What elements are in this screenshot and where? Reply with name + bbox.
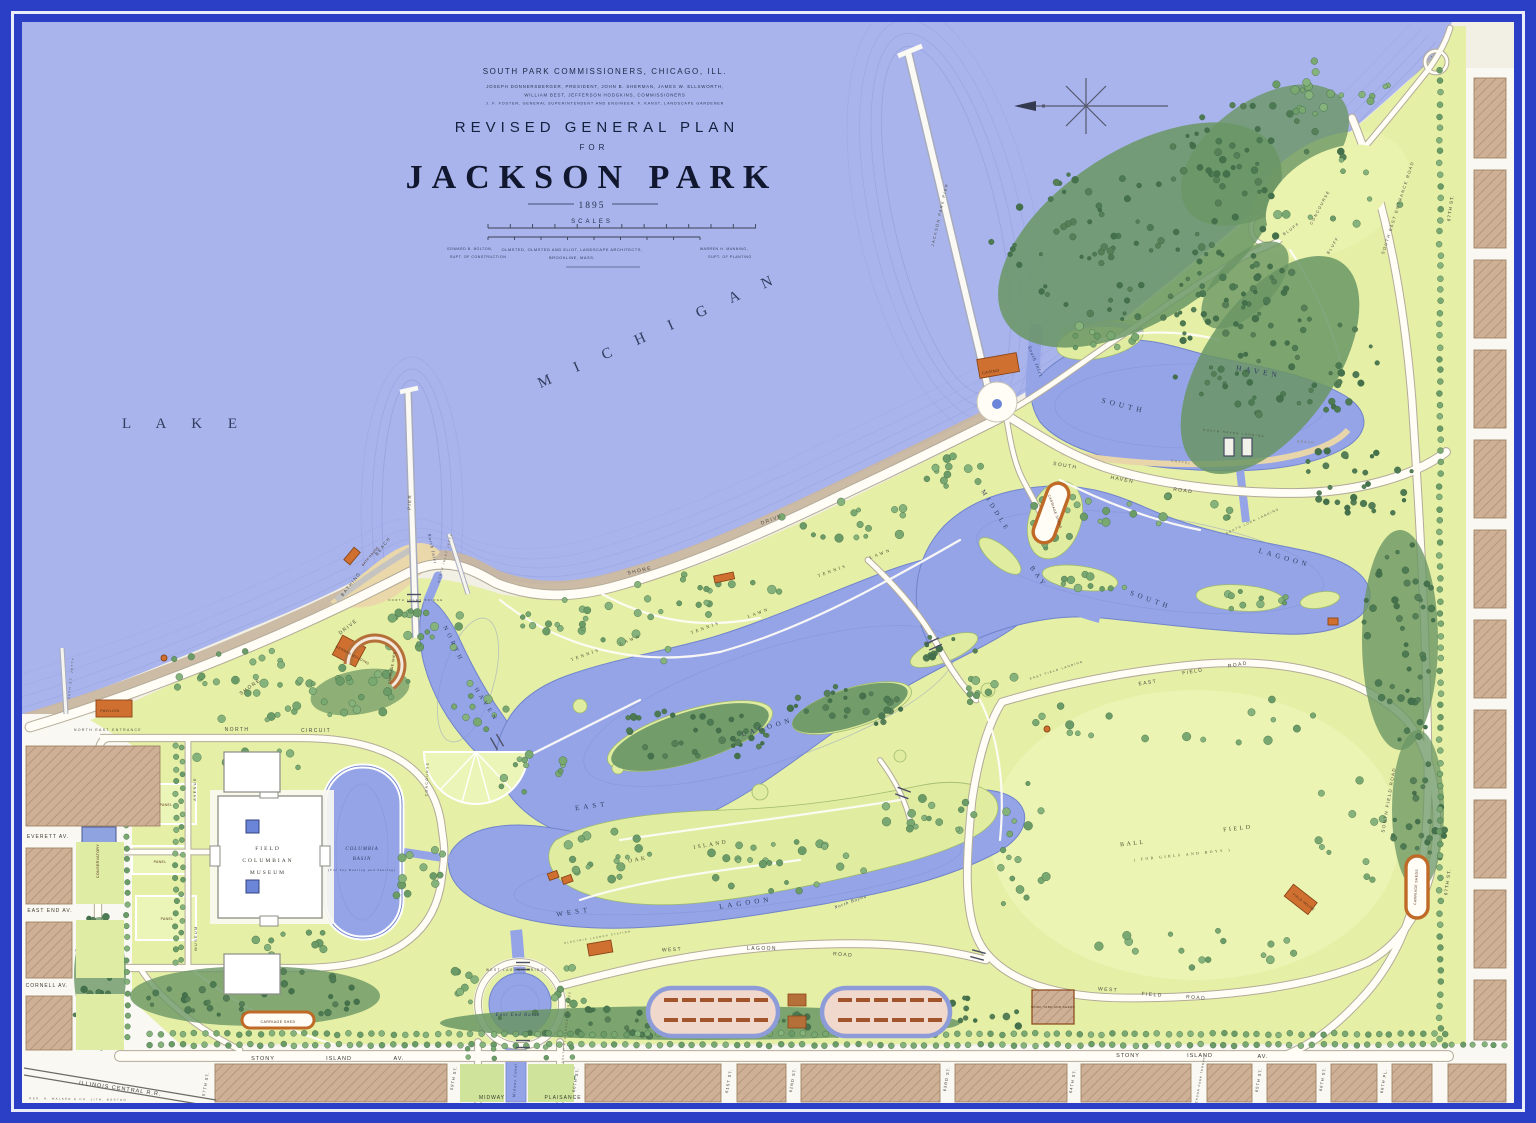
map-canvas: SOUTH PARK COMMISSIONERS, CHICAGO, ILL. … [0, 0, 1536, 1123]
map-label: WEST [662, 946, 682, 953]
ball-field-meadow [990, 690, 1400, 980]
map-label: PANEL [161, 917, 174, 921]
map-label: BASIN [353, 857, 372, 862]
map-label: ISLAND [1187, 1053, 1213, 1059]
commissioners-line1: JOSEPH DONNERSBERGER, PRESIDENT, JOHN B.… [486, 84, 724, 89]
map-label: STONY [251, 1056, 275, 1062]
map-title-for: FOR [580, 143, 609, 152]
map-label: CARRIAGE SHED [261, 1020, 296, 1024]
credit-center-city: BROOKLINE, MASS. [549, 255, 595, 260]
map-year: 1895 [579, 201, 606, 211]
map-label: East End Basin [495, 1013, 541, 1018]
map-label: PANEL [160, 803, 173, 807]
map-title: REVISED GENERAL PLAN [455, 119, 740, 136]
map-label: NORTH EAST ENTRANCE [74, 728, 142, 732]
map-label: PIER [407, 494, 413, 510]
map-label: L A K E [122, 416, 248, 432]
credit-center-firm: OLMSTED, OLMSTED AND ELIOT, LANDSCAPE AR… [502, 247, 643, 252]
commissioners-org: SOUTH PARK COMMISSIONERS, CHICAGO, ILL. [483, 67, 728, 76]
map-label: COLUMBIA [345, 847, 378, 852]
map-label: PLAISANCE [544, 1095, 581, 1101]
map-label: NORTH [225, 727, 250, 733]
map-label: MUSEUM [250, 870, 286, 876]
credit-right-role: SUPT. OF PLANTING [708, 255, 752, 259]
map-label: WORK YARD AND SHEDS [1031, 1005, 1075, 1009]
map-label: AVENUE [193, 777, 197, 801]
map-label: EAST END AV. [27, 908, 72, 914]
map-label: MIDWAY [479, 1095, 505, 1101]
map-label: STONY [1116, 1053, 1140, 1059]
map-label: PAVILION [100, 709, 119, 713]
map-label: AV. [1258, 1054, 1269, 1060]
map-label: NORTH INLET BRIDGE [388, 598, 443, 602]
map-label: PANEL [154, 860, 167, 864]
park-name-title: JACKSON PARK [406, 159, 779, 196]
credit-left-role: SUPT. OF CONSTRUCTION [450, 255, 507, 259]
commissioners-line2: WILLIAM BEST, JEFFERSON HODGKINS, COMMIS… [524, 93, 685, 98]
map-label: MUSEUM [194, 925, 198, 950]
map-label: EVERETT AV. [27, 834, 69, 840]
map-label: CIRCUIT [301, 728, 331, 734]
commissioners-line3: J. F. FOSTER, GENERAL SUPERINTENDENT AND… [486, 102, 724, 106]
map-label: ISLAND [326, 1056, 352, 1062]
jackson-park-map: SOUTH PARK COMMISSIONERS, CHICAGO, ILL. … [0, 0, 1536, 1123]
map-label: COLUMBIAN [242, 858, 293, 864]
map-label: AV. [394, 1056, 405, 1062]
map-label: (For Toy Boating and Skating) [328, 868, 396, 872]
map-label: CONSERVATORY [96, 844, 100, 878]
credit-right-name: WARREN H. MANNING, [700, 247, 748, 251]
map-label: WEST LAGOON BRIDGE [486, 968, 548, 972]
map-label: FIELD [255, 846, 281, 852]
credit-left-name: EDWARD B. BOLTON, [447, 247, 492, 251]
map-label: LAGOON [747, 946, 777, 952]
map-label: CORNELL AV. [26, 983, 69, 989]
